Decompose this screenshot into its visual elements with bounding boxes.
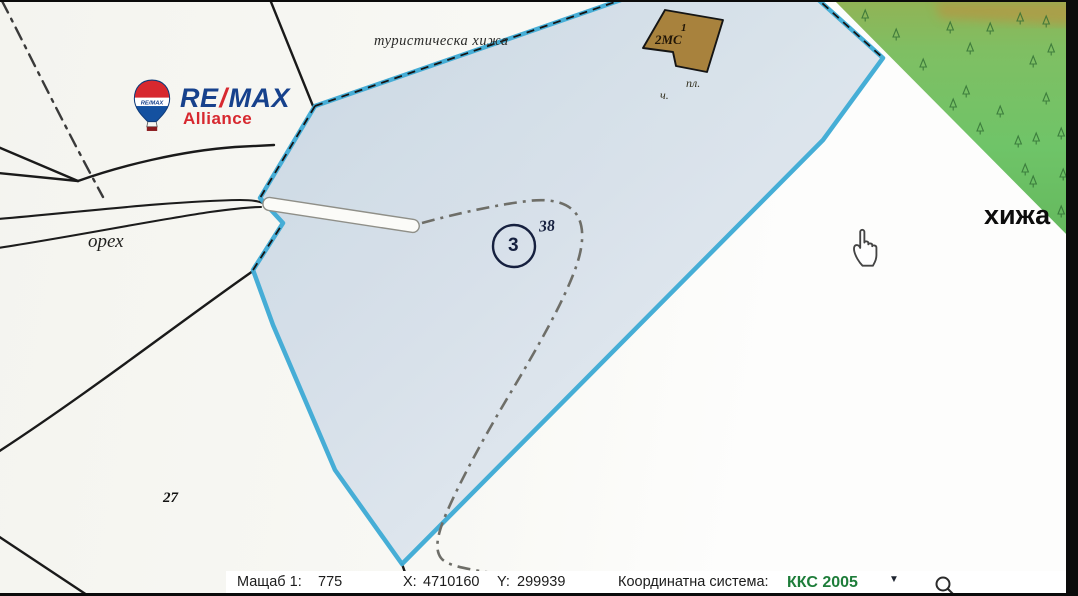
svg-text:RE/MAX: RE/MAX — [141, 100, 165, 106]
chevron-down-icon[interactable]: ▼ — [889, 574, 899, 585]
label-walnut: орех — [88, 231, 124, 253]
map-viewer-window: туристическа хижа орех хижа 3 38 27 2МС … — [0, 0, 1078, 596]
scale-label: Мащаб 1: — [237, 574, 302, 590]
neighbor-parcel-number: 27 — [163, 490, 178, 507]
screen-edge-top — [0, 0, 1078, 2]
remax-balloon-icon: RE/MAX — [126, 78, 178, 132]
parcel-number: 3 — [508, 235, 519, 257]
label-tourist-lodge: туристическа хижа — [374, 33, 509, 50]
selected-parcel[interactable] — [253, 0, 883, 564]
label-lodge: хижа — [984, 200, 1050, 231]
remax-logo: RE/MAX — [126, 78, 178, 137]
remax-wordmark: RE/MAX — [180, 85, 290, 112]
screen-edge-right — [1066, 0, 1078, 596]
x-coordinate-label: X: — [403, 574, 417, 590]
x-coordinate-value: 4710160 — [423, 574, 479, 590]
remax-alliance-label: Alliance — [183, 110, 252, 127]
building-code: 2МС — [655, 32, 682, 48]
building-mark: 1 — [681, 22, 687, 34]
boundary-dashdot-line — [2, 1, 103, 197]
crs-selector[interactable]: ККС 2005 — [787, 574, 858, 592]
y-coordinate-label: Y: — [497, 574, 510, 590]
hand-cursor-icon — [848, 224, 884, 268]
crs-label: Координатна система: — [618, 574, 769, 590]
y-coordinate-value: 299939 — [517, 574, 565, 590]
label-pl: пл. — [686, 76, 700, 91]
parcel-code: 38 — [538, 217, 555, 236]
road-lines — [0, 200, 263, 248]
scale-value: 775 — [318, 574, 342, 590]
label-ch: ч. — [660, 88, 669, 103]
